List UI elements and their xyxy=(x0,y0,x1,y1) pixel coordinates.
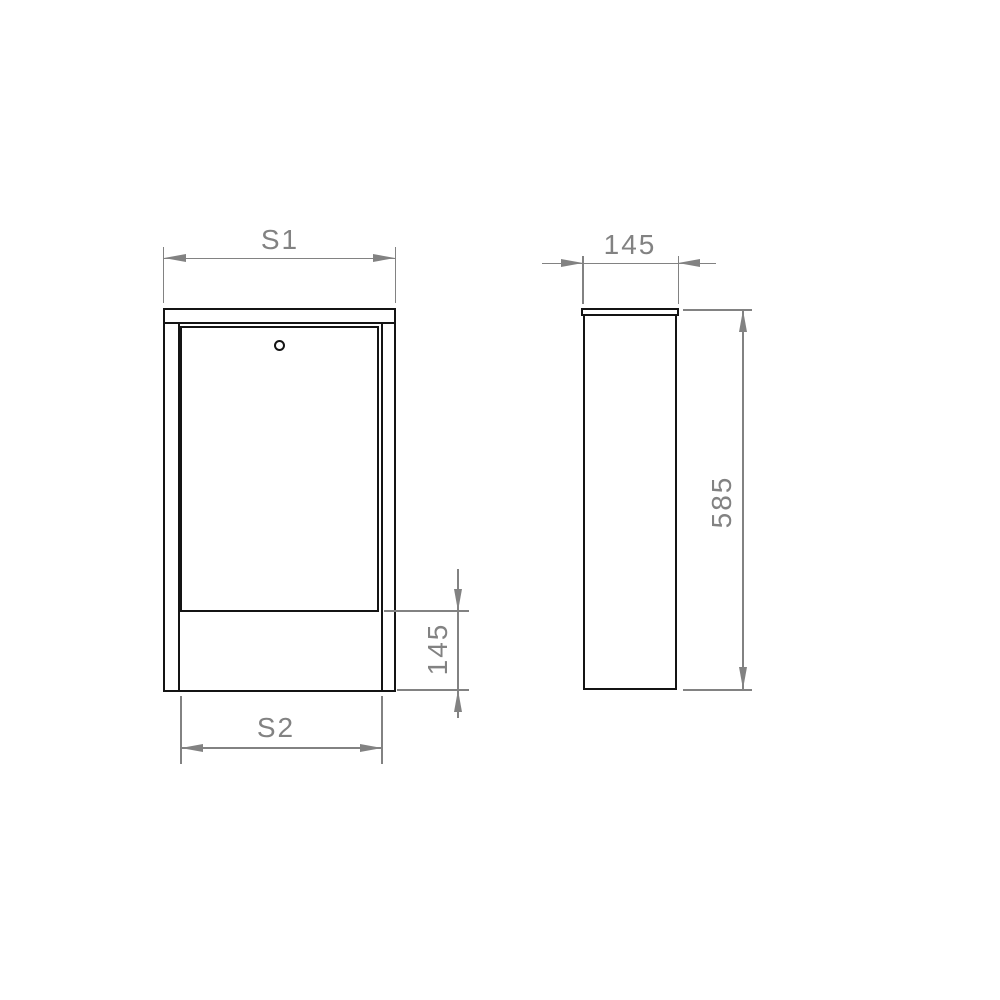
dim-side-height-arrow-bottom xyxy=(739,667,747,689)
dim-s1-arrow-left xyxy=(164,254,186,262)
front-right-frame-line xyxy=(381,324,383,691)
dim-side-height-ext-bottom xyxy=(683,689,752,691)
dim-s2-ext-left xyxy=(180,696,182,764)
side-body xyxy=(583,314,677,690)
dim-s2-ext-right xyxy=(381,696,383,764)
dim-side-depth-label: 145 xyxy=(580,229,680,261)
dim-side-height-line xyxy=(742,310,744,689)
dim-s1-arrow-right xyxy=(373,254,395,262)
lock-hole xyxy=(274,340,285,351)
technical-drawing-canvas: S1 S2 145 145 585 xyxy=(0,0,1000,1000)
dim-s2-arrow-left xyxy=(181,744,203,752)
dim-s2-line xyxy=(181,747,382,749)
dim-s2-arrow-right xyxy=(360,744,382,752)
dim-side-depth-arrow-right xyxy=(678,259,700,267)
dim-front-base-label: 145 xyxy=(422,604,454,694)
dim-s1-line xyxy=(164,258,395,260)
dim-side-height-arrow-top xyxy=(739,310,747,332)
dim-s1-label: S1 xyxy=(230,224,330,256)
dim-s2-label: S2 xyxy=(226,712,326,744)
dim-side-height-label: 585 xyxy=(706,457,738,547)
front-door-panel xyxy=(180,326,379,612)
front-top-cap-line xyxy=(164,322,395,324)
dim-front-base-arrow-top xyxy=(454,589,462,611)
dim-front-base-arrow-bottom xyxy=(454,690,462,712)
